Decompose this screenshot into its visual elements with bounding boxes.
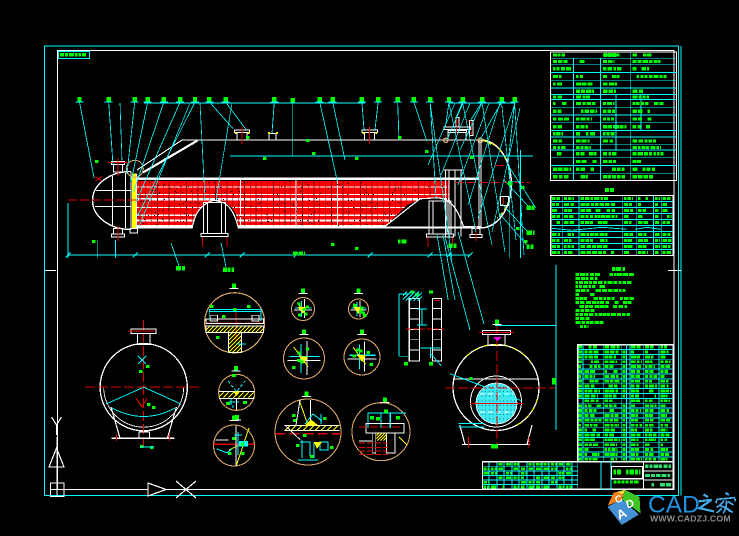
svg-text:WWW.CADZJ.COM: WWW.CADZJ.COM xyxy=(650,513,731,523)
